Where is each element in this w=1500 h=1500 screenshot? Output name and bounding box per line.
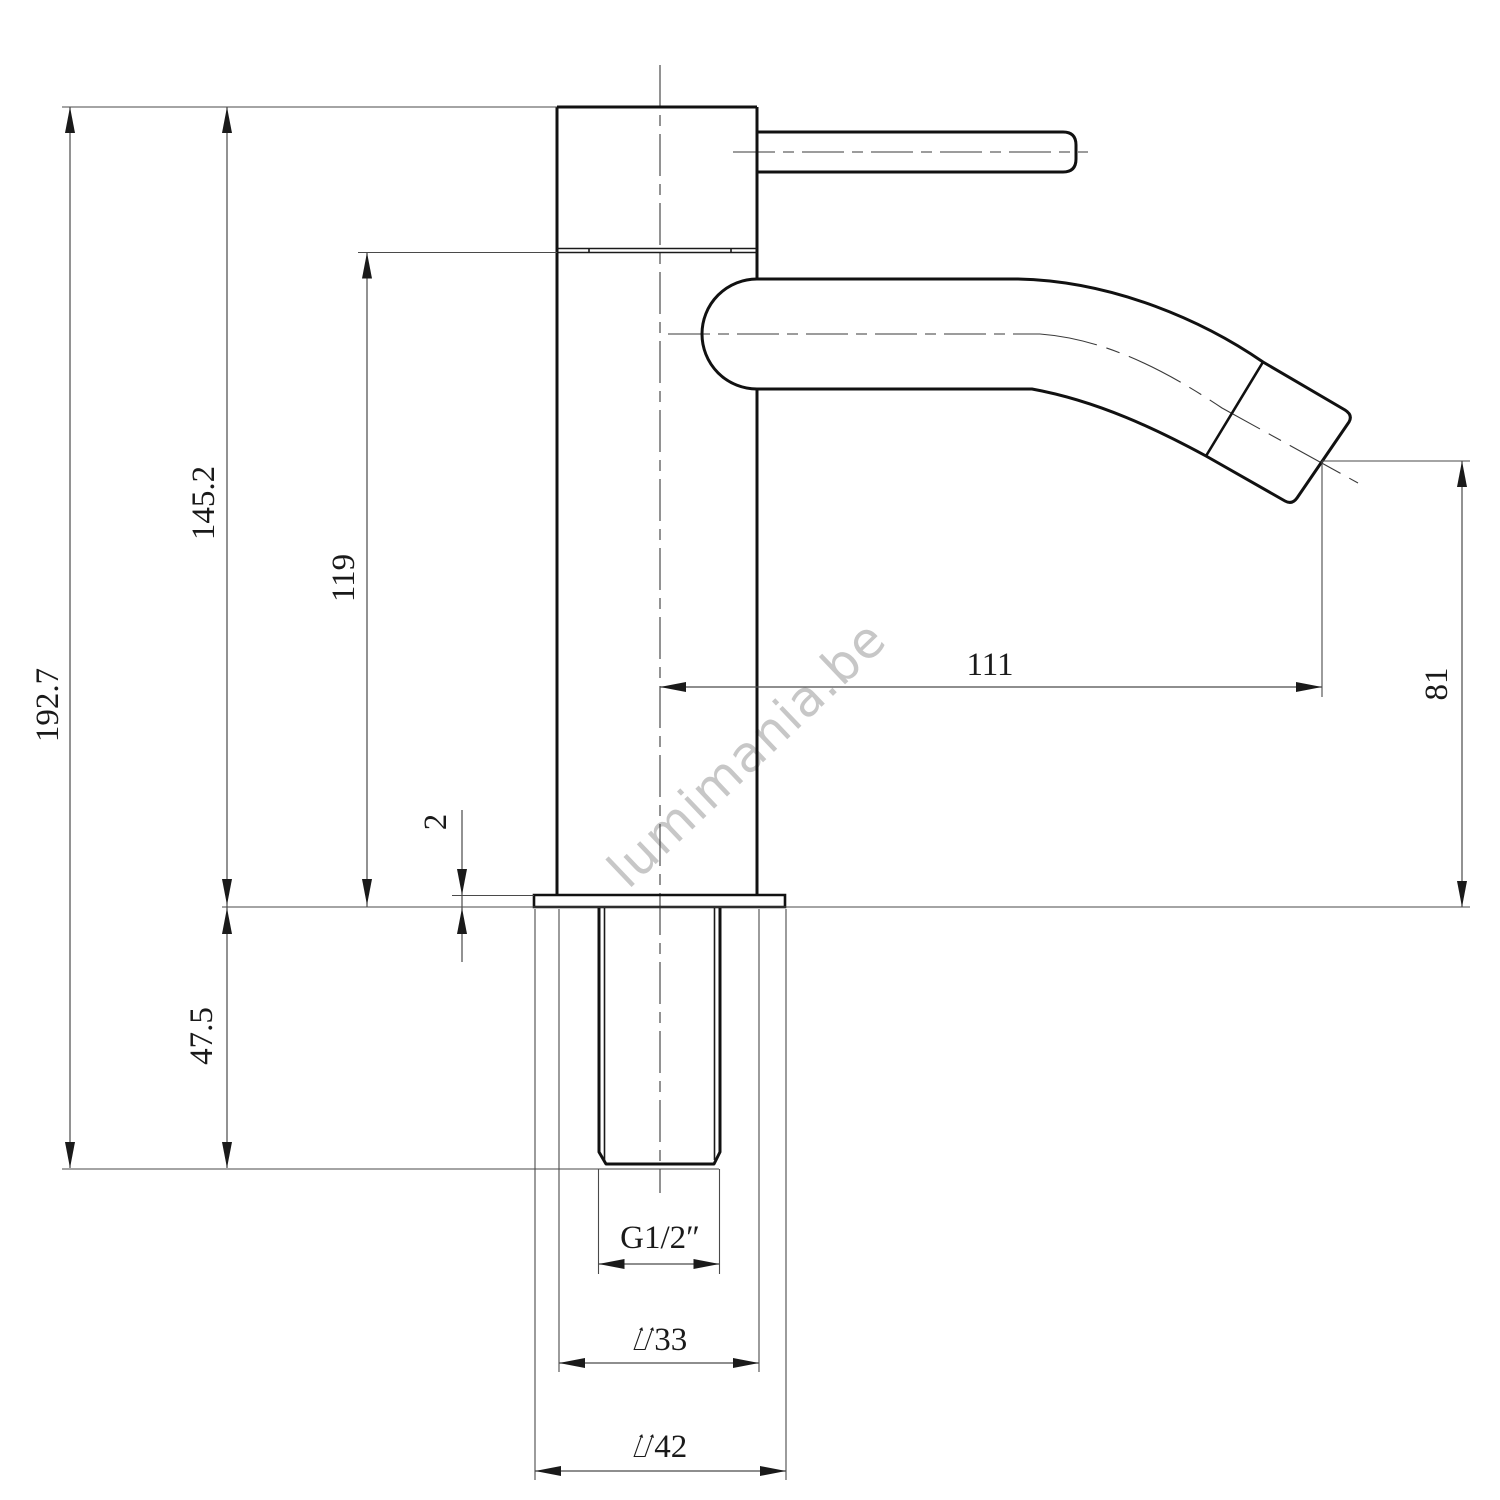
label-outlet-height: 81 [1419,668,1455,701]
label-thread-size: G1/2″ [620,1220,700,1256]
faucet-dimension-drawing: lumimania.be [0,0,1500,1500]
arrowhead [559,1358,585,1368]
technical-drawing-canvas: lumimania.be [0,0,1500,1500]
spout-outline [702,279,1350,502]
label-spout-reach: 111 [966,647,1013,683]
spout-bend-center-line [1040,334,1358,483]
arrowhead [694,1259,720,1269]
arrowhead [362,879,372,905]
label-body-diameter: ⌰33 [633,1322,688,1358]
arrowhead [1457,881,1467,907]
watermark-text: lumimania.be [596,609,897,899]
arrowhead [222,107,232,133]
label-plate-thickness: 2 [418,814,454,831]
spout-aerator-joint-line [1206,362,1263,456]
arrowhead [222,879,232,905]
label-overall-height: 192.7 [30,668,66,742]
label-spout-centre-height: 119 [326,554,362,602]
dimension-labels: 192.7 145.2 119 2 47.5 111 81 G1/2″ ⌰33 … [30,466,1455,1465]
arrowhead [457,869,467,895]
arrowhead [65,107,75,133]
arrowhead [362,253,372,279]
arrowhead [733,1358,759,1368]
arrowhead [457,908,467,934]
arrowhead [222,908,232,934]
label-shank-length: 47.5 [184,1007,220,1065]
label-base-diameter: ⌰42 [633,1429,688,1465]
arrowhead [222,1142,232,1168]
arrowhead [599,1259,625,1269]
extension-lines [62,107,1470,1480]
arrowhead [535,1466,561,1476]
arrowhead [760,1466,786,1476]
centerlines [660,65,1358,1193]
arrowhead [660,682,686,692]
label-deck-to-top: 145.2 [186,466,222,540]
arrowhead [65,1142,75,1168]
arrowhead [1457,461,1467,487]
faucet-outline [534,107,1350,1164]
arrowhead [1296,682,1322,692]
dimension-lines [65,107,1467,1476]
